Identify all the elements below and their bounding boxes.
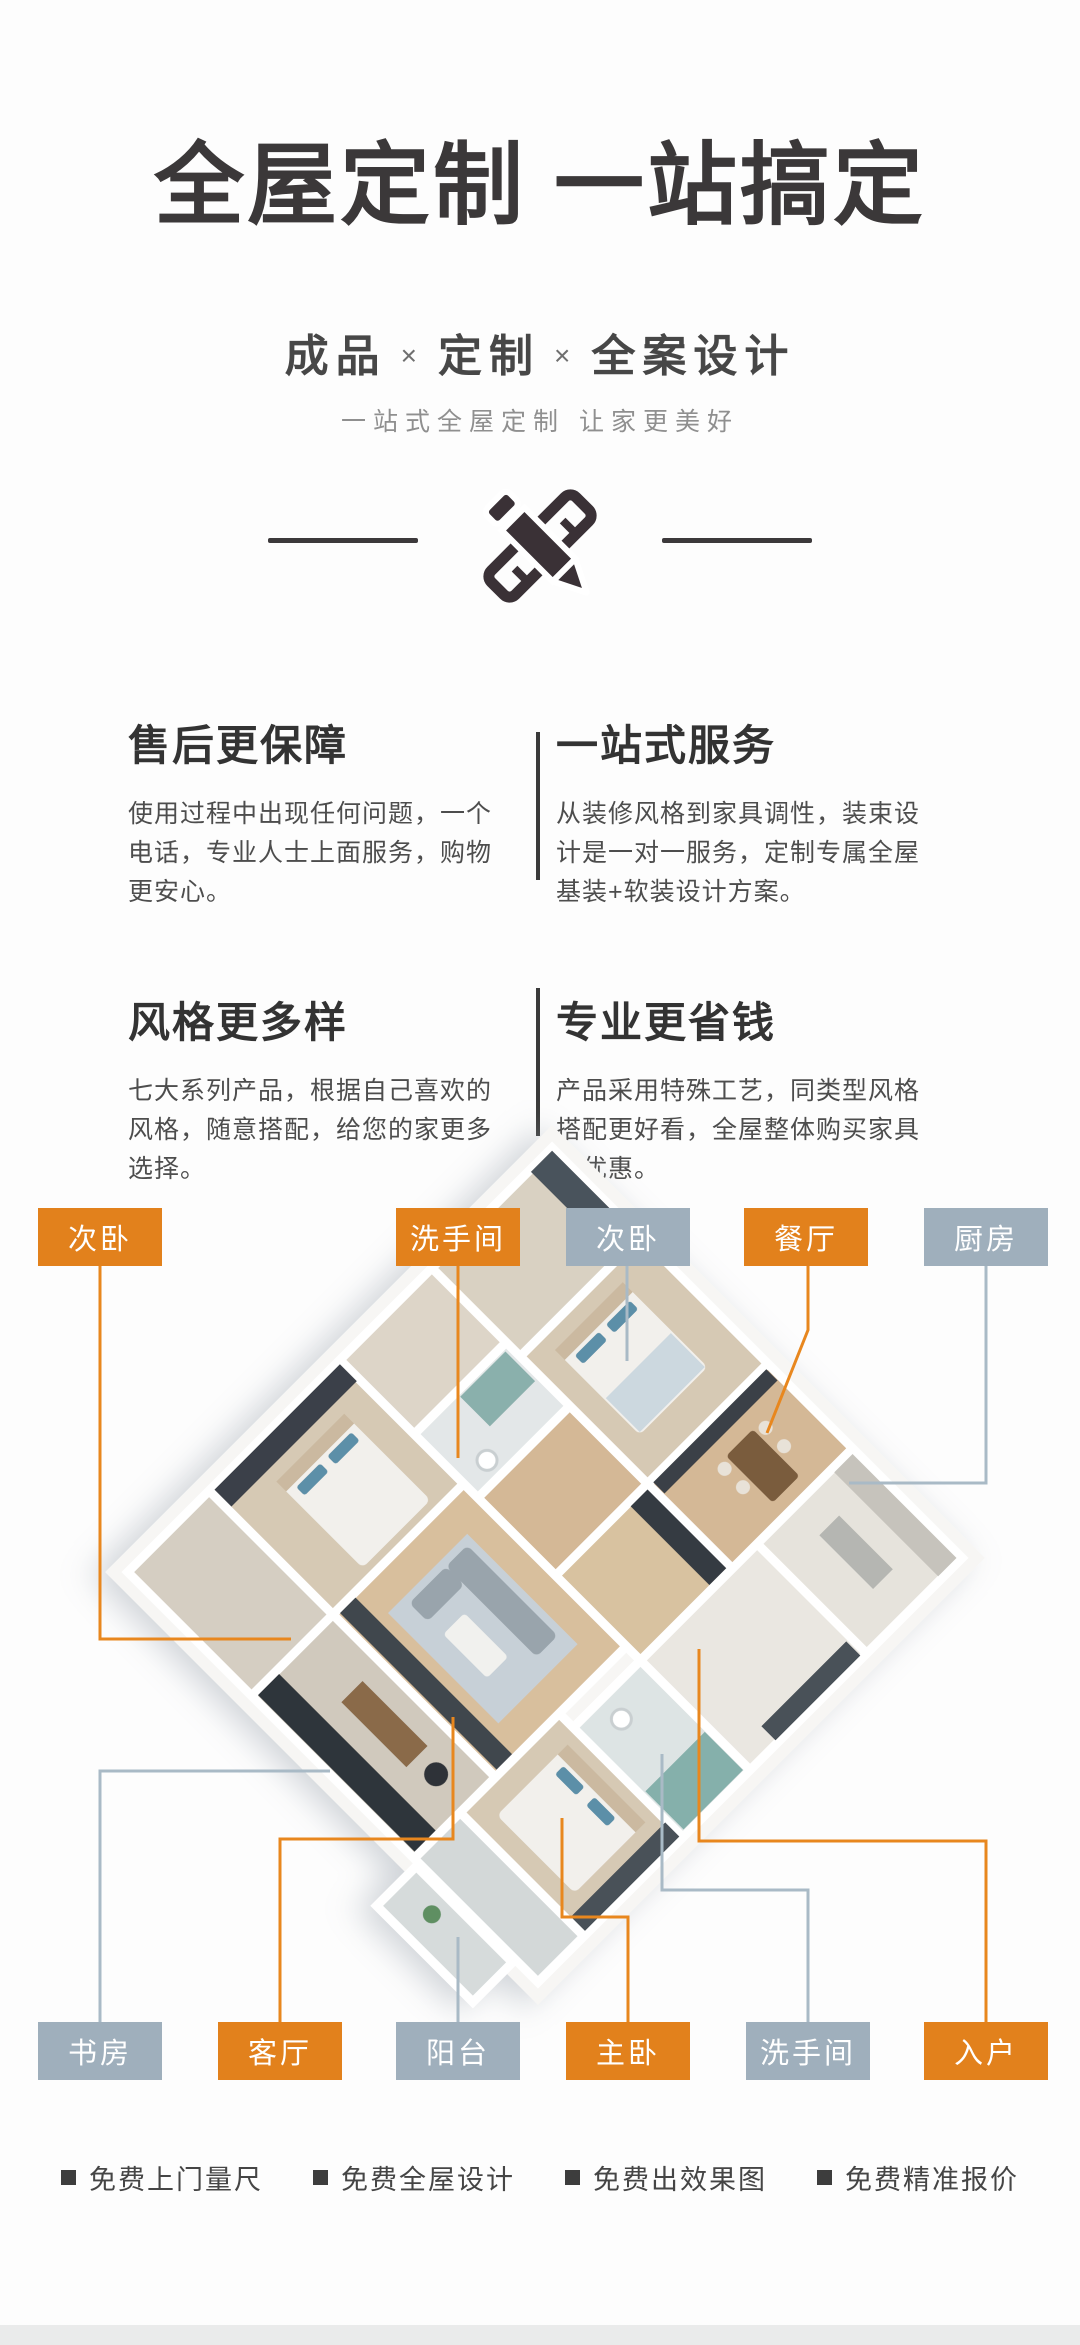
feature-block: 一站式服务 从装修风格到家具调性，装束设计是一对一服务，定制专属全屋基装+软装设… <box>556 712 952 911</box>
feature-title: 一站式服务 <box>556 712 952 773</box>
service-label: 免费精准报价 <box>845 2158 1019 2197</box>
subtitle-part: 定制 <box>438 332 540 381</box>
service-item: 免费全屋设计 <box>313 2158 515 2197</box>
square-bullet-icon <box>817 2170 832 2185</box>
square-bullet-icon <box>565 2170 580 2185</box>
leader-study <box>100 1771 330 2022</box>
feature-title: 专业更省钱 <box>556 989 952 1050</box>
feature-block: 售后更保障 使用过程中出现任何问题，一个电话，专业人士上面服务，购物更安心。 <box>128 712 524 911</box>
room-label: 次卧 <box>38 1208 162 1266</box>
subtitle-part: 全案设计 <box>591 332 795 381</box>
room-label: 厨房 <box>924 1208 1048 1266</box>
feature-title: 风格更多样 <box>128 989 524 1050</box>
service-item: 免费出效果图 <box>565 2158 767 2197</box>
page-title: 全屋定制 一站搞定 <box>0 112 1080 242</box>
feature-description: 从装修风格到家具调性，装束设计是一对一服务，定制专属全屋基装+软装设计方案。 <box>556 795 928 911</box>
service-label: 免费全屋设计 <box>341 2158 515 2197</box>
right-rule-line <box>662 538 812 543</box>
square-bullet-icon <box>313 2170 328 2185</box>
service-label: 免费上门量尺 <box>89 2158 263 2197</box>
feature-title: 售后更保障 <box>128 712 524 773</box>
room-label: 洗手间 <box>396 1208 520 1266</box>
subtitle-part: × <box>540 340 591 371</box>
floorplan-illustration <box>0 1100 1080 2110</box>
room-label: 书房 <box>38 2022 162 2080</box>
square-bullet-icon <box>61 2170 76 2185</box>
service-item: 免费上门量尺 <box>61 2158 263 2197</box>
room-label: 阳台 <box>396 2022 520 2080</box>
pencil-ruler-icon <box>460 468 620 628</box>
service-label: 免费出效果图 <box>593 2158 767 2197</box>
bottom-edge-strip <box>0 2325 1080 2345</box>
hero-icon-row <box>0 468 1080 628</box>
subtitle-part: × <box>387 340 438 371</box>
room-label: 主卧 <box>566 2022 690 2080</box>
room-label: 洗手间 <box>746 2022 870 2080</box>
room-label: 客厅 <box>218 2022 342 2080</box>
room-label: 餐厅 <box>744 1208 868 1266</box>
services-row: 免费上门量尺 免费全屋设计 免费出效果图 免费精准报价 <box>0 2158 1080 2197</box>
feature-description: 使用过程中出现任何问题，一个电话，专业人士上面服务，购物更安心。 <box>128 795 500 911</box>
subtitle-part: 成品 <box>285 332 387 381</box>
hero-tagline: 一站式全屋定制 让家更美好 <box>0 402 1080 438</box>
feature-divider-top <box>536 732 540 880</box>
room-label: 入户 <box>924 2022 1048 2080</box>
room-label: 次卧 <box>566 1208 690 1266</box>
left-rule-line <box>268 538 418 543</box>
hero-subtitle: 成品×定制×全案设计 <box>0 320 1080 384</box>
service-item: 免费精准报价 <box>817 2158 1019 2197</box>
